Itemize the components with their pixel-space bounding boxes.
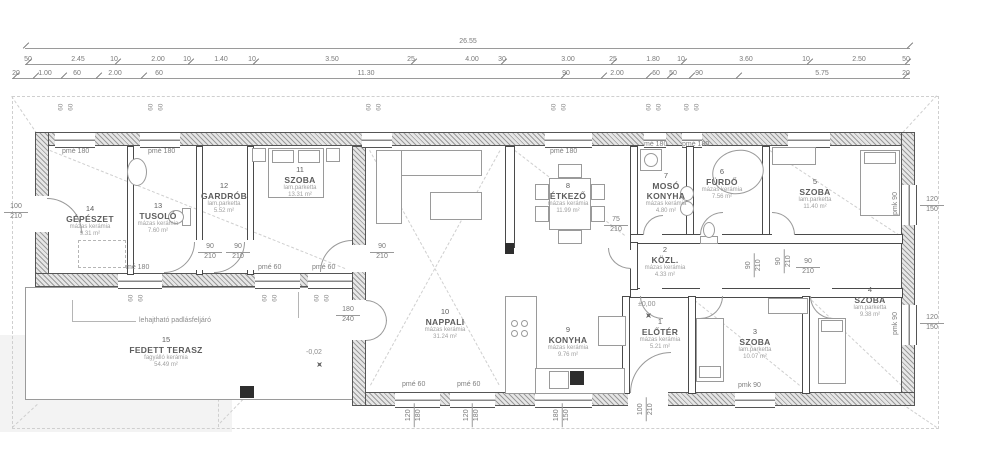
dim-value: 210 — [796, 268, 820, 277]
window-tag: pmé 180 — [148, 148, 175, 155]
window — [118, 273, 162, 289]
wall-nappali-west — [352, 146, 366, 406]
dim: 2.45 — [71, 56, 85, 63]
room-label-eloter: 1 ELŐTÉR mázas kerámia 5.21 m² — [640, 318, 681, 351]
room-name: ÉTKEZŐ — [548, 191, 589, 201]
dim-line-1 — [25, 48, 910, 49]
wardrobe-szoba5 — [772, 147, 816, 165]
dim-value: 210 — [198, 253, 222, 262]
room-number: 6 — [702, 168, 743, 177]
pillow — [864, 152, 896, 164]
chair — [591, 184, 605, 200]
window-tag: pmk 90 — [892, 312, 899, 335]
door-size: 90 210 — [226, 243, 250, 262]
window-size: 120 180 — [463, 403, 482, 427]
room-material: mázas kerámia — [640, 337, 681, 344]
door-size: 90 210 — [198, 243, 222, 262]
sill-60: 60 — [314, 295, 321, 302]
stove-burner — [521, 320, 528, 327]
room-name: SZOBA — [283, 175, 316, 185]
dim: 2.00 — [151, 56, 165, 63]
dim-value: 90 — [775, 249, 785, 273]
window-tag: mé 180 — [126, 264, 149, 271]
room-material: fagyálló kerámia — [129, 355, 202, 362]
sill-60: 60 — [561, 104, 568, 111]
room-label-kozl: 2 KÖZL. mázas kerámia 4.33 m² — [645, 246, 686, 279]
dim-value: 90 — [198, 243, 222, 253]
sill-60: 60 — [366, 104, 373, 111]
room-area: 9.38 m² — [853, 312, 886, 319]
room-name: SZOBA — [798, 187, 831, 197]
dim-value: 100 — [4, 203, 28, 213]
sill-60: 60 — [551, 104, 558, 111]
room-number: 14 — [66, 205, 114, 214]
window — [901, 185, 917, 225]
room-area: 9.76 m² — [548, 352, 589, 359]
room-number: 3 — [738, 328, 771, 337]
level-mark-terrace: -0,02 — [306, 349, 322, 356]
szoba11-door-gap — [352, 245, 366, 272]
window-tag: pmé 60 — [402, 381, 425, 388]
dim-value: 120 — [920, 196, 944, 206]
room-material: mázas kerámia — [645, 265, 686, 272]
room-material: lam.parketta — [738, 347, 771, 354]
window-size: 120 150 — [920, 314, 944, 333]
dim: 2.00 — [610, 70, 624, 77]
dim: 11.30 — [358, 70, 375, 77]
sill-60: 60 — [138, 295, 145, 302]
dim-value: 75 — [604, 216, 628, 226]
room-area: 5.52 m² — [201, 208, 247, 215]
room-name: KONYHA — [548, 335, 589, 345]
window-size: 120 150 — [920, 196, 944, 215]
sill-60: 60 — [128, 295, 135, 302]
sill-60: 60 — [148, 104, 155, 111]
room-area: 54.49 m² — [129, 362, 202, 369]
room-label-konyha: 9 KONYHA mázas kerámia 9.76 m² — [548, 326, 589, 359]
dim: 4.00 — [465, 56, 479, 63]
door-size: 100 210 — [4, 203, 28, 222]
dim-value: 180 — [336, 306, 360, 316]
room-name: TUSOLÓ — [138, 211, 179, 221]
dim-value: 210 — [647, 397, 656, 421]
dim-value: 120 — [463, 403, 473, 427]
dim-value: 90 — [796, 258, 820, 268]
room-label-gardrob: 12 GARDRÓB lam.parketta 5.52 m² — [201, 182, 247, 215]
tv-unit — [505, 243, 514, 254]
room-material: mázas kerámia — [425, 327, 466, 334]
door-size: 90 210 — [796, 258, 820, 277]
window — [255, 273, 300, 289]
room-name: SZOBA — [853, 295, 886, 305]
door-size: 90 210 — [745, 253, 764, 277]
dim-value: 90 — [226, 243, 250, 253]
window-tag: pmé 60 — [312, 264, 335, 271]
dim: 1.40 — [214, 56, 228, 63]
window — [308, 273, 352, 289]
room-label-szoba4: 4 SZOBA lam.parketta 9.38 m² — [853, 286, 886, 319]
dim-tick — [907, 42, 913, 48]
wall-nappali-etkezo — [505, 146, 515, 248]
pillow — [699, 366, 721, 378]
dim-value: 90 — [745, 253, 755, 277]
dim-value: 210 — [785, 249, 794, 273]
dim: 3.60 — [739, 56, 753, 63]
room-name: FEDETT TERASZ — [129, 345, 202, 355]
dim-value: 120 — [920, 314, 944, 324]
room-number: 2 — [645, 246, 686, 255]
terrace-post — [240, 386, 254, 398]
window — [55, 132, 95, 148]
dim: 90 — [695, 70, 703, 77]
chair — [558, 164, 582, 178]
dim: 60 — [652, 70, 660, 77]
mechanical-equipment — [78, 240, 126, 268]
room-material: mázas kerámia — [702, 187, 743, 194]
sill-60: 60 — [656, 104, 663, 111]
room-material: mázas kerámia — [548, 345, 589, 352]
window — [788, 132, 830, 148]
room-name: FÜRDŐ — [702, 177, 743, 187]
room-material: lam.parketta — [798, 197, 831, 204]
window — [735, 392, 775, 408]
room-label-gepeszet: 14 GÉPÉSZET mázas kerámia 9.31 m² — [66, 205, 114, 238]
wall-right — [901, 132, 915, 406]
room-label-etkezo: 8 ÉTKEZŐ mázas kerámia 11.99 m² — [548, 182, 589, 215]
room-name: NAPPALI — [425, 317, 466, 327]
room-material: lam.parketta — [853, 305, 886, 312]
dim-total: 26.55 — [459, 38, 477, 45]
window-tag: pmk 90 — [738, 382, 761, 389]
sill-60: 60 — [58, 104, 65, 111]
dim: 2.00 — [108, 70, 122, 77]
chair — [591, 206, 605, 222]
room-area: 31.24 m² — [425, 334, 466, 341]
window-tag: pmé 180 — [62, 148, 89, 155]
dim-value: 210 — [370, 253, 394, 262]
window — [545, 132, 592, 148]
window-tag: pmé 180 — [550, 148, 577, 155]
dim-value: 100 — [637, 397, 647, 421]
stove-burner — [511, 320, 518, 327]
terrace-door-size: 180 240 — [336, 306, 360, 325]
washing-machine-door — [644, 153, 658, 167]
room-area: 7.60 m² — [138, 228, 179, 235]
room-name: MOSÓ KONYHA — [640, 181, 692, 201]
dim-value: 240 — [336, 316, 360, 325]
room-label-szoba5: 5 SZOBA lam.parketta 11.40 m² — [798, 178, 831, 211]
room-label-moso: 7 MOSÓ KONYHA mázas kerámia 4.80 m² — [640, 172, 692, 215]
dim: 3.50 — [325, 56, 339, 63]
room-area: 4.33 m² — [645, 272, 686, 279]
wall-furdo-szoba5 — [762, 146, 770, 244]
dim-value: 210 — [4, 213, 28, 222]
room-number: 15 — [129, 336, 202, 345]
sill-60: 60 — [68, 104, 75, 111]
wall-eloter-szoba3 — [688, 296, 696, 394]
dim-line-2 — [25, 64, 910, 65]
room-label-furdo: 6 FÜRDŐ mázas kerámia 7.56 m² — [702, 168, 743, 201]
window-tag: pmé 60 — [457, 381, 480, 388]
room-number: 8 — [548, 182, 589, 191]
kitchen-hob — [570, 371, 584, 385]
dim: 3.00 — [561, 56, 575, 63]
dim-value: 120 — [405, 403, 415, 427]
sill-60: 60 — [272, 295, 279, 302]
wall-etkezo-moso — [630, 146, 638, 248]
room-area: 9.31 m² — [66, 231, 114, 238]
entrance-door-size: 100 210 — [637, 397, 656, 421]
nightstand — [326, 148, 340, 162]
dim-value: 180 — [415, 403, 424, 427]
room-material: lam.parketta — [283, 185, 316, 192]
window — [901, 305, 917, 345]
door-size: 90 210 — [370, 243, 394, 262]
floor-plan: 26.55 50 2.45 10 2.00 10 1.40 10 3.50 25… — [0, 0, 1000, 467]
level-mark-zero: ±0,00 — [638, 301, 655, 308]
chair — [558, 230, 582, 244]
window-tag: pmé 60 — [258, 264, 281, 271]
wardrobe-szoba3 — [768, 298, 808, 314]
room-material: mázas kerámia — [66, 224, 114, 231]
window — [362, 132, 392, 148]
door-size: 90 210 — [775, 249, 794, 273]
leader-line — [72, 321, 136, 322]
room-number: 7 — [640, 172, 692, 181]
room-area: 11.99 m² — [548, 208, 589, 215]
sill-60: 60 — [376, 104, 383, 111]
dim: 2.50 — [852, 56, 866, 63]
kitchen-counter — [505, 296, 537, 394]
dim: 60 — [73, 70, 81, 77]
stove-burner — [521, 330, 528, 337]
room-material: lam.parketta — [201, 201, 247, 208]
stove-burner — [511, 330, 518, 337]
sill-60: 60 — [262, 295, 269, 302]
room-name: SZOBA — [738, 337, 771, 347]
room-number: 13 — [138, 202, 179, 211]
dim: 1.00 — [38, 70, 52, 77]
room-material: mázas kerámia — [640, 201, 692, 208]
room-label-tusolo: 13 TUSOLÓ mázas kerámia 7.60 m² — [138, 202, 179, 235]
window-tag: mé 180 — [644, 141, 667, 148]
leader-line — [298, 292, 299, 318]
dim-value: 210 — [604, 226, 628, 235]
room-number: 5 — [798, 178, 831, 187]
dim: 5.75 — [815, 70, 829, 77]
dim-value: 210 — [226, 253, 250, 262]
sofa-chaise — [376, 150, 402, 224]
room-name: GÉPÉSZET — [66, 214, 114, 224]
pillow — [272, 150, 294, 163]
leader-line — [72, 300, 73, 321]
kitchen-sink — [549, 371, 569, 389]
pillow — [298, 150, 320, 163]
window-tag: pmk 90 — [892, 192, 899, 215]
window-tag: pmé 180 — [682, 141, 709, 148]
room-area: 11.40 m² — [798, 204, 831, 211]
dim: 60 — [155, 70, 163, 77]
dim-value: 180 — [553, 403, 563, 427]
room-area: 4.80 m² — [640, 208, 692, 215]
room-name: ELŐTÉR — [640, 327, 681, 337]
room-name: KÖZL. — [645, 255, 686, 265]
room-name: GARDRÓB — [201, 191, 247, 201]
door-size: 75 210 — [604, 216, 628, 235]
sill-60: 60 — [646, 104, 653, 111]
room-number: 1 — [640, 318, 681, 327]
room-number: 12 — [201, 182, 247, 191]
room-area: 10.07 m² — [738, 354, 771, 361]
room-label-nappali: 10 NAPPALI mázas kerámia 31.24 m² — [425, 308, 466, 341]
nightstand — [252, 148, 266, 162]
pillow — [821, 320, 843, 332]
sill-60: 60 — [158, 104, 165, 111]
dim-value: 210 — [755, 253, 764, 277]
room-area: 13.31 m² — [283, 192, 316, 199]
dim: 1.80 — [646, 56, 660, 63]
dim-value: 150 — [563, 403, 572, 427]
dim-value: 150 — [920, 206, 944, 215]
room-number: 4 — [853, 286, 886, 295]
dim-value: 90 — [370, 243, 394, 253]
dim-line-3 — [12, 78, 910, 79]
room-number: 11 — [283, 166, 316, 175]
room-label-szoba11: 11 SZOBA lam.parketta 13.31 m² — [283, 166, 316, 199]
room-area: 5.21 m² — [640, 344, 681, 351]
toilet-bowl — [703, 222, 715, 238]
wall-corridor-north — [630, 234, 903, 244]
room-material: mázas kerámia — [138, 221, 179, 228]
dim-value: 150 — [920, 324, 944, 333]
fridge — [598, 316, 626, 346]
window-size: 120 180 — [405, 403, 424, 427]
room-material: mázas kerámia — [548, 201, 589, 208]
room-label-terasz: 15 FEDETT TERASZ fagyálló kerámia 54.49 … — [129, 336, 202, 369]
sill-60: 60 — [694, 104, 701, 111]
sill-60: 60 — [324, 295, 331, 302]
room-number: 10 — [425, 308, 466, 317]
washbasin — [127, 158, 147, 186]
window-size: 180 150 — [553, 403, 572, 427]
window — [140, 132, 180, 148]
coffee-table — [430, 192, 482, 220]
room-number: 9 — [548, 326, 589, 335]
sill-60: 60 — [684, 104, 691, 111]
dim-value: 180 — [473, 403, 482, 427]
room-area: 7.56 m² — [702, 194, 743, 201]
room-label-szoba3: 3 SZOBA lam.parketta 10.07 m² — [738, 328, 771, 361]
attic-hatch-note: lehajtható padlásfeljáró — [139, 317, 211, 324]
